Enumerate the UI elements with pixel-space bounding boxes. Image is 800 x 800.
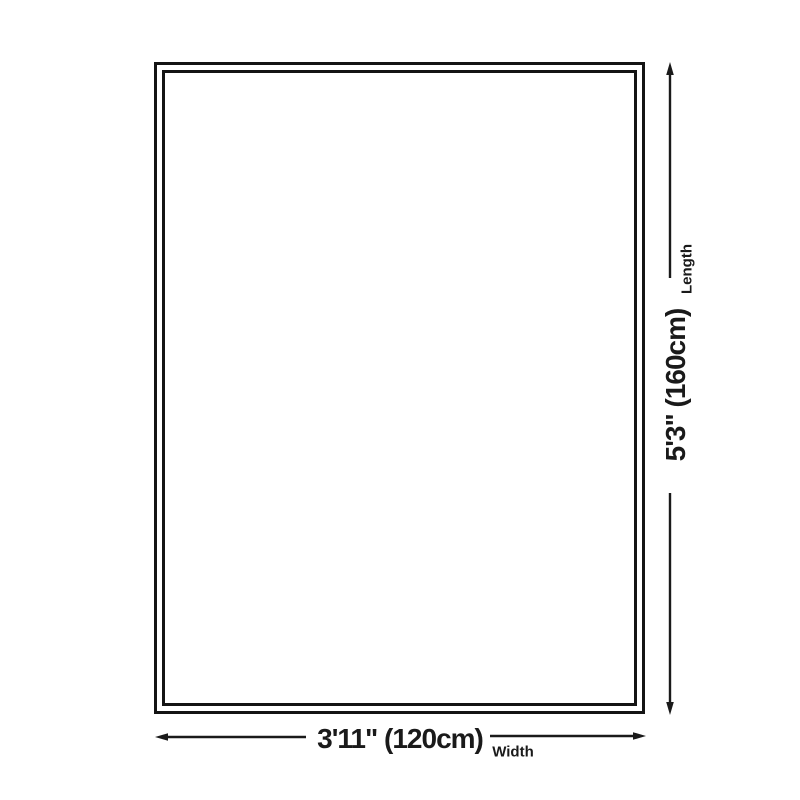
arrow-right-icon xyxy=(633,732,646,740)
product-size-diagram: 5'3" (160cm) Length 3'11" (120cm) Width xyxy=(0,0,800,800)
length-value: 5'3" (160cm) xyxy=(660,309,692,462)
arrow-down-icon xyxy=(666,702,674,715)
width-label: Width xyxy=(492,744,534,761)
arrow-up-icon xyxy=(666,62,674,75)
length-label: Length xyxy=(679,244,696,294)
width-value: 3'11" (120cm) xyxy=(317,723,483,755)
arrow-left-icon xyxy=(155,733,168,741)
